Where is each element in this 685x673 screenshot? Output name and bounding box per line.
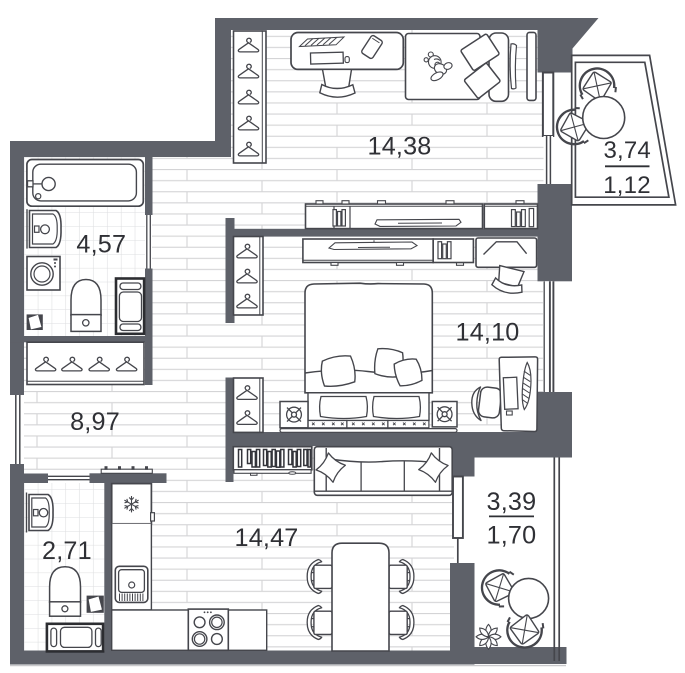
- svg-text:1,70: 1,70: [486, 522, 536, 550]
- svg-text:14,38: 14,38: [367, 132, 431, 160]
- svg-text:3,74: 3,74: [603, 137, 651, 164]
- svg-text:8,97: 8,97: [70, 408, 120, 436]
- svg-text:2,71: 2,71: [42, 537, 92, 565]
- svg-text:14,47: 14,47: [234, 524, 298, 552]
- svg-text:4,57: 4,57: [76, 231, 126, 259]
- svg-text:3,39: 3,39: [486, 488, 536, 516]
- svg-text:1,12: 1,12: [603, 172, 651, 199]
- svg-text:14,10: 14,10: [455, 318, 519, 346]
